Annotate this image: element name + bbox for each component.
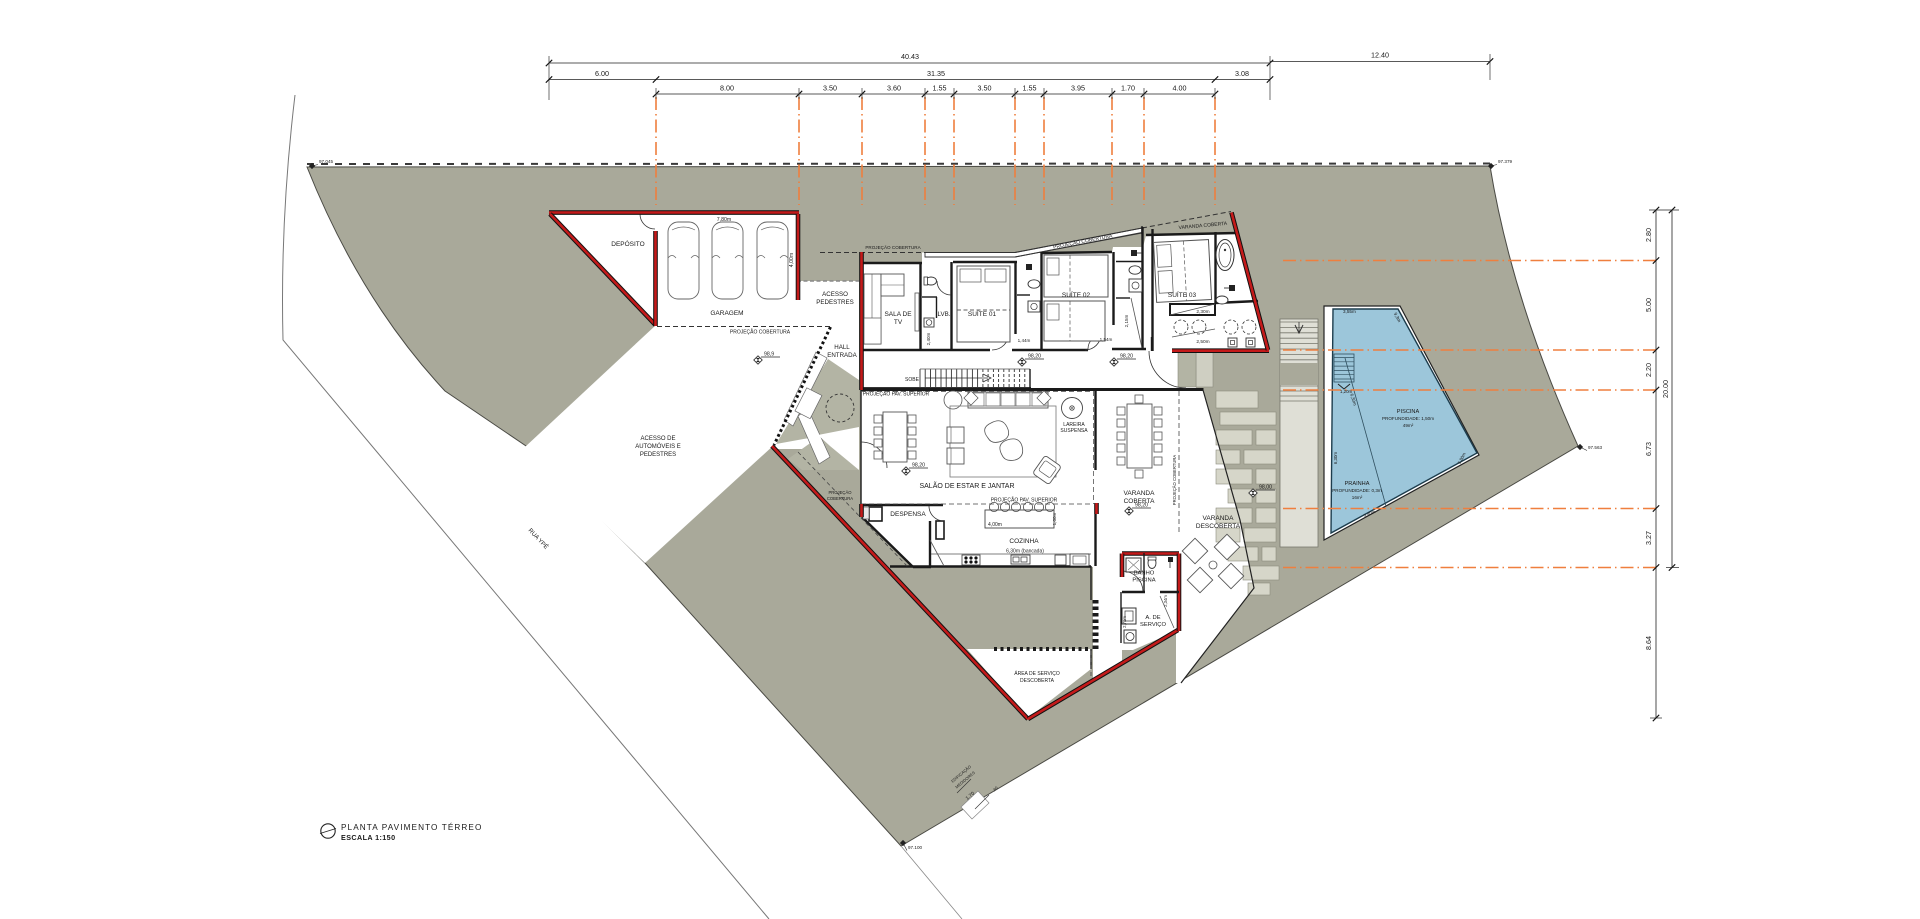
svg-text:PROJEÇÃO: PROJEÇÃO: [828, 490, 852, 495]
svg-text:PROFUNDIDADE: 1,50m: PROFUNDIDADE: 1,50m: [1382, 416, 1434, 421]
svg-text:GARAGEM: GARAGEM: [710, 310, 743, 317]
svg-text:3.95: 3.95: [1071, 84, 1085, 93]
svg-text:3.50: 3.50: [978, 84, 992, 93]
svg-text:PISCINA: PISCINA: [1132, 578, 1155, 584]
svg-text:SUÍTE 01: SUÍTE 01: [968, 309, 997, 318]
svg-text:2,40m: 2,40m: [926, 332, 931, 345]
svg-text:8.00: 8.00: [720, 84, 734, 93]
svg-text:COBERTURA: COBERTURA: [827, 496, 853, 501]
svg-text:DESCOBERTA: DESCOBERTA: [1020, 678, 1055, 684]
svg-text:LVB.: LVB.: [938, 311, 951, 318]
svg-text:31.35: 31.35: [927, 69, 945, 78]
svg-text:12.40: 12.40: [1371, 51, 1389, 60]
svg-text:1,00m: 1,00m: [1052, 512, 1057, 525]
svg-text:1.55: 1.55: [933, 84, 947, 93]
svg-text:8.64: 8.64: [1644, 636, 1653, 650]
svg-text:97.100: 97.100: [908, 845, 922, 850]
svg-text:BANHO: BANHO: [1134, 571, 1155, 577]
svg-text:2,15m: 2,15m: [1124, 314, 1129, 327]
svg-text:98,20: 98,20: [1120, 354, 1133, 360]
svg-text:PLANTA PAVIMENTO TÉRREO: PLANTA PAVIMENTO TÉRREO: [341, 822, 482, 832]
svg-text:20.00: 20.00: [1661, 380, 1670, 398]
svg-text:6,30m (bancada): 6,30m (bancada): [1006, 549, 1044, 555]
svg-text:97.563: 97.563: [1588, 445, 1602, 450]
svg-text:HALL: HALL: [834, 344, 850, 351]
svg-text:16m²: 16m²: [1352, 495, 1363, 500]
svg-text:SUSPENSA: SUSPENSA: [1060, 428, 1088, 434]
svg-text:VARANDA: VARANDA: [1124, 490, 1156, 497]
svg-text:PISCINA: PISCINA: [1397, 409, 1420, 415]
svg-text:3.08: 3.08: [1235, 69, 1249, 78]
svg-text:PROJEÇÃO COBERTURA: PROJEÇÃO COBERTURA: [865, 244, 921, 250]
svg-text:PROJEÇÃO PAV. SUPERIOR: PROJEÇÃO PAV. SUPERIOR: [863, 391, 930, 398]
svg-text:SUÍTE 03: SUÍTE 03: [1168, 290, 1197, 299]
svg-text:4.00: 4.00: [1173, 84, 1187, 93]
svg-text:DESCOBERTA: DESCOBERTA: [1196, 523, 1241, 530]
svg-text:PROJEÇÃO PAV. SUPERIOR: PROJEÇÃO PAV. SUPERIOR: [991, 497, 1058, 504]
svg-text:VARANDA: VARANDA: [1203, 515, 1235, 522]
svg-text:2,50m: 2,50m: [1196, 339, 1209, 345]
svg-text:97.379: 97.379: [1498, 159, 1512, 164]
svg-text:3,55m: 3,55m: [1343, 309, 1356, 314]
svg-text:1.70: 1.70: [1121, 84, 1135, 93]
svg-text:TV: TV: [894, 319, 903, 326]
svg-text:6.73: 6.73: [1644, 442, 1653, 456]
svg-text:2,30m: 2,30m: [1196, 309, 1209, 315]
svg-text:4,00m: 4,00m: [789, 253, 795, 267]
svg-text:PEDESTRES: PEDESTRES: [816, 299, 853, 306]
svg-text:98,9: 98,9: [764, 352, 774, 358]
svg-text:3.50: 3.50: [823, 84, 837, 93]
svg-text:A. DE: A. DE: [1145, 615, 1160, 621]
svg-text:SOBE: SOBE: [905, 377, 920, 383]
svg-text:98,20: 98,20: [1028, 354, 1041, 360]
svg-text:6,30m: 6,30m: [1333, 452, 1338, 465]
svg-text:98,20: 98,20: [912, 463, 925, 469]
svg-text:3.60: 3.60: [887, 84, 901, 93]
svg-text:AUTOMÓVEIS E: AUTOMÓVEIS E: [635, 443, 681, 450]
svg-text:3.27: 3.27: [1644, 531, 1653, 545]
svg-text:ACESSO: ACESSO: [822, 291, 848, 298]
svg-text:PEDESTRES: PEDESTRES: [640, 452, 676, 458]
svg-text:SALA DE: SALA DE: [884, 311, 912, 318]
svg-text:RUA YPÊ: RUA YPÊ: [527, 526, 551, 550]
svg-text:49m²: 49m²: [1403, 423, 1414, 428]
svg-text:2.20: 2.20: [1644, 363, 1653, 377]
svg-text:ÁREA DE SERVIÇO: ÁREA DE SERVIÇO: [1014, 670, 1060, 677]
svg-text:SUÍTE 02: SUÍTE 02: [1062, 290, 1091, 299]
svg-text:7,80m: 7,80m: [717, 217, 731, 223]
svg-text:4,00m: 4,00m: [988, 522, 1002, 528]
svg-text:SALÃO DE ESTAR E JANTAR: SALÃO DE ESTAR E JANTAR: [919, 481, 1014, 490]
svg-text:40.43: 40.43: [901, 52, 919, 61]
svg-text:SERVIÇO: SERVIÇO: [1140, 622, 1166, 628]
svg-text:PROJEÇÃO COBERTURA: PROJEÇÃO COBERTURA: [730, 329, 791, 336]
svg-text:98,00: 98,00: [1259, 485, 1272, 491]
svg-text:5.00: 5.00: [1644, 298, 1653, 312]
svg-text:PROFUNDIDADE: 0,3m: PROFUNDIDADE: 0,3m: [1332, 488, 1382, 493]
svg-text:PROJEÇÃO COBERTURA: PROJEÇÃO COBERTURA: [1172, 455, 1177, 506]
svg-text:97.045: 97.045: [319, 159, 333, 164]
svg-text:2,70m: 2,70m: [1122, 616, 1127, 628]
svg-text:1.55: 1.55: [1023, 84, 1037, 93]
svg-text:DESPENSA: DESPENSA: [890, 511, 926, 518]
svg-text:PRAINHA: PRAINHA: [1345, 481, 1370, 487]
svg-text:ESCALA 1:150: ESCALA 1:150: [341, 833, 395, 842]
svg-text:2.80: 2.80: [1644, 228, 1653, 242]
svg-text:1,54m: 1,54m: [1100, 337, 1113, 342]
svg-text:COBERTA: COBERTA: [1124, 498, 1155, 505]
svg-text:ENTRADA: ENTRADA: [827, 352, 857, 359]
svg-text:ACESSO DE: ACESSO DE: [640, 436, 675, 442]
svg-text:DEPÓSITO: DEPÓSITO: [611, 239, 644, 248]
svg-text:COZINHA: COZINHA: [1009, 538, 1039, 545]
svg-text:1,44m: 1,44m: [1018, 338, 1031, 343]
svg-text:6.00: 6.00: [595, 69, 609, 78]
svg-text:2,34m: 2,34m: [1163, 595, 1168, 607]
